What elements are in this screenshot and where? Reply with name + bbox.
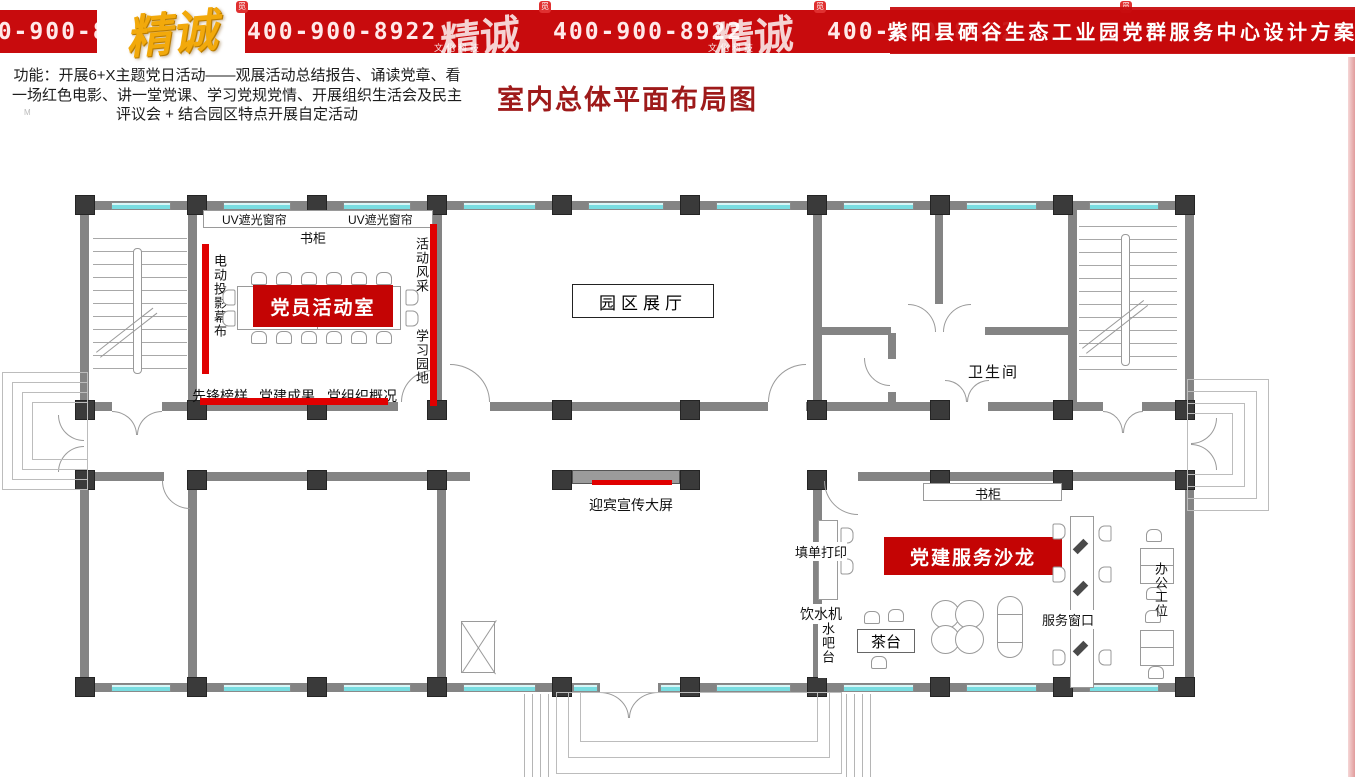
column <box>680 195 700 215</box>
chair <box>1099 526 1112 542</box>
display-wall-bar <box>430 224 437 406</box>
projector-screen-bar <box>202 244 209 374</box>
room-label-exhibition: 园区展厅 <box>572 284 714 318</box>
chair <box>376 331 392 344</box>
room-label-text: 党建服务沙龙 <box>910 543 1036 570</box>
chair <box>301 272 317 285</box>
restroom-label: 卫生间 <box>968 361 1019 382</box>
door-arc <box>1123 411 1143 433</box>
stair-rail <box>1121 234 1130 366</box>
chair <box>1053 567 1066 583</box>
tea-table-label: 茶台 <box>871 631 901 652</box>
column <box>930 400 950 420</box>
porch-step <box>1187 413 1233 475</box>
chair <box>1148 666 1164 679</box>
column <box>427 470 447 490</box>
floor-plan: UV遮光窗帘 UV遮光窗帘 书柜 电动投影幕布 党员活动室 <box>0 0 1355 777</box>
chair <box>326 331 342 344</box>
service-window-label: 服务窗口 <box>1042 610 1094 629</box>
porch-step <box>580 692 818 742</box>
column <box>187 470 207 490</box>
chair <box>301 331 317 344</box>
ramp-line <box>870 694 871 777</box>
chair <box>251 331 267 344</box>
wall-segment <box>813 210 822 402</box>
ramp-line <box>524 694 525 777</box>
wall-segment <box>988 402 1103 411</box>
column <box>552 195 572 215</box>
ramp-line <box>862 694 863 777</box>
column <box>930 677 950 697</box>
column <box>1053 195 1073 215</box>
projector-screen-label: 电动投影幕布 <box>210 254 229 364</box>
chair <box>351 331 367 344</box>
column <box>552 470 572 490</box>
column <box>187 677 207 697</box>
tea-table: 茶台 <box>857 629 915 653</box>
wall-segment <box>437 481 446 683</box>
chair <box>1053 524 1066 540</box>
wall-segment <box>858 472 1190 481</box>
window <box>111 684 171 692</box>
window <box>1089 202 1159 210</box>
wall-segment <box>80 472 89 692</box>
activity-display-label: 活动风采 <box>412 237 431 307</box>
bookcase-label: 书柜 <box>300 228 326 247</box>
capsule-seat <box>997 596 1023 658</box>
column <box>680 400 700 420</box>
chair <box>888 609 904 622</box>
window <box>588 202 664 210</box>
column <box>930 195 950 215</box>
column <box>307 470 327 490</box>
window <box>463 202 536 210</box>
door-arc <box>967 380 989 402</box>
column <box>75 677 95 697</box>
ramp-line <box>548 694 549 777</box>
chair <box>871 656 887 669</box>
wc-partition-wall <box>935 210 943 304</box>
column <box>1053 400 1073 420</box>
window <box>573 684 598 692</box>
wall-segment <box>188 210 197 402</box>
door-arc <box>768 364 806 402</box>
chair <box>864 611 880 624</box>
office-workstations-label: 办公工位 <box>1151 562 1170 626</box>
column <box>1175 677 1195 697</box>
capsule-divider <box>997 614 1023 615</box>
window <box>716 202 791 210</box>
chair <box>276 331 292 344</box>
window <box>223 202 291 210</box>
door-arc <box>1103 411 1123 433</box>
water-bar-label: 水吧台 <box>818 622 837 678</box>
office-desk <box>1140 630 1174 666</box>
porch-step <box>32 402 88 460</box>
wall-segment <box>1068 210 1077 402</box>
desk-divider <box>1141 647 1173 648</box>
chair <box>376 272 392 285</box>
door-arc <box>908 304 936 332</box>
study-corner-label: 学习园地 <box>412 329 431 399</box>
uv-curtain-label: UV遮光窗帘 <box>222 211 287 228</box>
chair <box>406 311 419 327</box>
wc-partition-wall <box>985 327 1068 335</box>
door-arc <box>824 481 858 515</box>
door-arc <box>162 481 190 509</box>
chair <box>326 272 342 285</box>
window <box>843 202 914 210</box>
window <box>343 202 411 210</box>
window <box>843 684 914 692</box>
welcome-screen-accent <box>592 480 672 485</box>
chair <box>276 272 292 285</box>
chair <box>251 272 267 285</box>
window <box>223 684 291 692</box>
stair-rail <box>133 248 142 374</box>
door-arc <box>112 411 137 435</box>
column <box>807 400 827 420</box>
chair <box>223 290 236 306</box>
door-arc <box>137 411 162 435</box>
wc-partition-wall <box>888 333 896 359</box>
ramp-line <box>532 694 533 777</box>
capsule-divider <box>997 642 1023 643</box>
door-arc <box>945 380 967 402</box>
chair <box>1099 650 1112 666</box>
wc-partition-wall <box>821 327 891 335</box>
wall-segment <box>490 402 768 411</box>
ramp-line <box>846 694 847 777</box>
bookcase-label: 书柜 <box>975 484 1001 503</box>
door-arc <box>943 304 971 332</box>
door-arc <box>450 364 490 402</box>
column <box>307 677 327 697</box>
window <box>716 684 791 692</box>
door-arc <box>864 358 890 386</box>
room-label-activity: 党员活动室 <box>253 285 393 327</box>
column <box>1175 195 1195 215</box>
display-wall-bar <box>200 398 388 405</box>
room-label-salon: 党建服务沙龙 <box>884 537 1062 575</box>
column <box>680 470 700 490</box>
window <box>343 684 411 692</box>
column <box>427 677 447 697</box>
clover-seat <box>955 625 984 654</box>
uv-curtain-label: UV遮光窗帘 <box>348 211 413 228</box>
wc-partition-wall <box>888 392 896 408</box>
chair <box>351 272 367 285</box>
welcome-screen-label: 迎宾宣传大屏 <box>589 495 673 515</box>
column <box>807 195 827 215</box>
ramp-line <box>854 694 855 777</box>
window <box>463 684 536 692</box>
column <box>552 400 572 420</box>
water-dispenser-label: 饮水机 <box>800 604 842 624</box>
window <box>966 202 1037 210</box>
room-label-text: 园区展厅 <box>599 289 687 314</box>
chair <box>223 311 236 327</box>
room-label-text: 党员活动室 <box>270 293 375 320</box>
chair <box>1053 650 1066 666</box>
chair <box>1146 529 1162 542</box>
column <box>75 195 95 215</box>
wall-segment <box>188 481 197 683</box>
window <box>966 684 1037 692</box>
form-printing-label: 填单打印 <box>795 542 847 561</box>
window <box>111 202 171 210</box>
ramp-line <box>540 694 541 777</box>
design-sheet: 400-900-8922 400-900-8922 400-900-8922 4… <box>0 0 1355 777</box>
window <box>1089 684 1159 692</box>
chair <box>1099 567 1112 583</box>
